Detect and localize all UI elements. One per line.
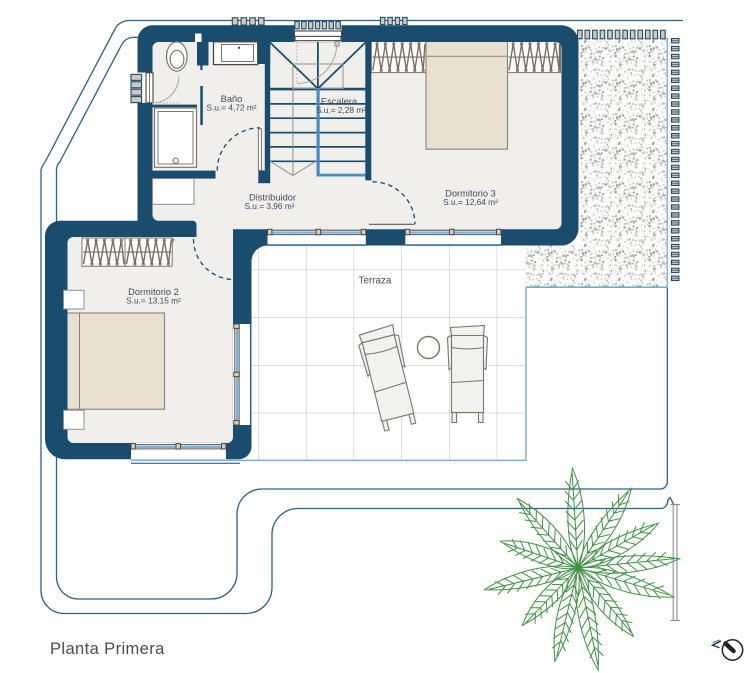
svg-text:Planta Primera: Planta Primera: [50, 640, 165, 658]
svg-text:S.u.= 3,96 m²: S.u.= 3,96 m²: [244, 201, 294, 211]
svg-text:S.u.= 2,28 m²: S.u.= 2,28 m²: [316, 105, 366, 115]
svg-text:S.u.= 12,64 m²: S.u.= 12,64 m²: [443, 197, 498, 207]
svg-text:Terraza: Terraza: [359, 276, 392, 287]
svg-text:S.u.= 4,72 m²: S.u.= 4,72 m²: [206, 103, 256, 113]
svg-text:S.u.= 13,15 m²: S.u.= 13,15 m²: [126, 296, 181, 306]
